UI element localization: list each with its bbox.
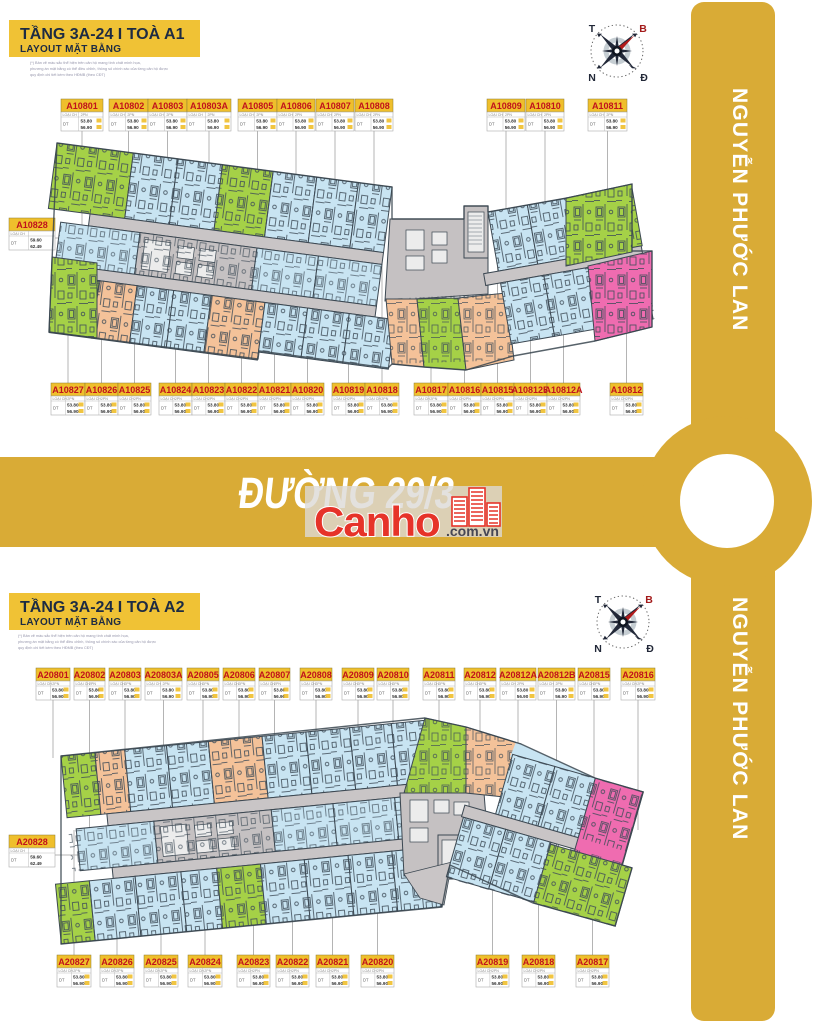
svg-text:DT: DT <box>279 122 285 127</box>
svg-text:NGUYỄN PHƯỚC LAN: NGUYỄN PHƯỚC LAN <box>728 88 752 332</box>
svg-text:2PN: 2PN <box>73 969 80 973</box>
svg-text:LOẠI CH: LOẠI CH <box>120 397 135 401</box>
svg-text:DT: DT <box>102 978 108 983</box>
svg-text:LAYOUT MẶT BẰNG: LAYOUT MẶT BẰNG <box>20 42 121 55</box>
svg-text:LOẠI CH: LOẠI CH <box>363 969 378 973</box>
svg-text:2PN: 2PN <box>377 969 384 973</box>
svg-text:LOẠI CH: LOẠI CH <box>278 969 293 973</box>
svg-text:53.80: 53.80 <box>207 119 219 124</box>
svg-text:53.80: 53.80 <box>292 975 304 980</box>
svg-text:DT: DT <box>293 406 299 411</box>
svg-text:LOẠI CH: LOẠI CH <box>293 397 308 401</box>
svg-text:53.80: 53.80 <box>637 688 649 693</box>
svg-text:A10806: A10806 <box>280 101 312 111</box>
svg-text:A20810: A20810 <box>377 670 409 680</box>
svg-text:2PN: 2PN <box>67 397 74 401</box>
svg-text:A20828: A20828 <box>16 837 48 847</box>
svg-text:LOẠI CH: LOẠI CH <box>111 113 126 117</box>
svg-text:A20815: A20815 <box>578 670 610 680</box>
svg-text:56.90: 56.90 <box>67 409 79 414</box>
svg-text:53.80: 53.80 <box>124 688 136 693</box>
svg-text:A20818: A20818 <box>523 957 555 967</box>
svg-text:LOẠI CH: LOẠI CH <box>189 682 204 686</box>
svg-text:LOẠI CH: LOẠI CH <box>502 682 517 686</box>
svg-text:2PN: 2PN <box>160 969 167 973</box>
svg-text:DT: DT <box>363 978 369 983</box>
svg-text:53.80: 53.80 <box>166 119 178 124</box>
svg-text:56.90: 56.90 <box>479 694 491 699</box>
svg-text:56.90: 56.90 <box>626 409 638 414</box>
svg-text:LOẠI CH: LOẠI CH <box>53 397 68 401</box>
svg-text:DT: DT <box>194 406 200 411</box>
svg-text:53.80: 53.80 <box>373 119 385 124</box>
svg-text:2PN: 2PN <box>256 113 263 117</box>
svg-text:56.90: 56.90 <box>238 694 250 699</box>
svg-text:53.80: 53.80 <box>392 688 404 693</box>
svg-text:56.90: 56.90 <box>332 981 344 986</box>
svg-text:(*) Bản vẽ màu sắc thể hiện tr: (*) Bản vẽ màu sắc thể hiện trên căn hộ … <box>18 633 129 638</box>
svg-text:56.90: 56.90 <box>101 409 113 414</box>
svg-text:A20819: A20819 <box>477 957 509 967</box>
svg-text:56.90: 56.90 <box>73 981 85 986</box>
svg-text:LOẠI CH: LOẠI CH <box>379 682 394 686</box>
svg-text:2PN: 2PN <box>81 113 88 117</box>
svg-text:53.80: 53.80 <box>593 688 605 693</box>
svg-text:2PN: 2PN <box>89 682 96 686</box>
svg-text:A10802: A10802 <box>113 101 145 111</box>
svg-text:56.90: 56.90 <box>274 409 286 414</box>
svg-text:2PN: 2PN <box>530 397 537 401</box>
svg-text:56.90: 56.90 <box>81 125 93 130</box>
svg-text:2PN: 2PN <box>563 397 570 401</box>
svg-text:56.90: 56.90 <box>208 409 220 414</box>
svg-text:2PN: 2PN <box>116 969 123 973</box>
svg-text:53.80: 53.80 <box>464 403 476 408</box>
svg-text:LOẠI CH: LOẠI CH <box>489 113 504 117</box>
svg-text:DT: DT <box>261 691 267 696</box>
svg-text:A20825: A20825 <box>145 957 177 967</box>
svg-text:53.80: 53.80 <box>479 688 491 693</box>
svg-text:2PN: 2PN <box>464 397 471 401</box>
svg-text:A10828: A10828 <box>16 220 48 230</box>
svg-text:A20801: A20801 <box>37 670 69 680</box>
svg-text:A10816: A10816 <box>449 385 481 395</box>
svg-text:2PN: 2PN <box>626 397 633 401</box>
svg-text:56.90: 56.90 <box>292 981 304 986</box>
svg-text:DT: DT <box>528 122 534 127</box>
svg-text:56.90: 56.90 <box>492 981 504 986</box>
svg-text:56.90: 56.90 <box>207 125 219 130</box>
svg-text:DT: DT <box>318 978 324 983</box>
svg-text:DT: DT <box>161 406 167 411</box>
svg-text:LOẠI CH: LOẠI CH <box>302 682 317 686</box>
svg-text:DT: DT <box>278 978 284 983</box>
svg-text:A20803A: A20803A <box>144 670 183 680</box>
svg-text:LOẠI CH: LOẠI CH <box>111 682 126 686</box>
svg-text:56.90: 56.90 <box>315 694 327 699</box>
svg-text:LOẠI CH: LOẠI CH <box>59 969 74 973</box>
svg-text:LOẠI CH: LOẠI CH <box>161 397 176 401</box>
svg-text:A20807: A20807 <box>259 670 291 680</box>
svg-text:A10818: A10818 <box>366 385 398 395</box>
svg-text:53.80: 53.80 <box>492 975 504 980</box>
svg-text:2PN: 2PN <box>592 969 599 973</box>
svg-text:53.80: 53.80 <box>348 403 360 408</box>
svg-text:56.90: 56.90 <box>373 125 385 130</box>
svg-text:2PN: 2PN <box>166 113 173 117</box>
svg-text:DT: DT <box>53 406 59 411</box>
svg-text:A20812: A20812 <box>464 670 496 680</box>
svg-text:TẦNG 3A-24 I TOÀ A1: TẦNG 3A-24 I TOÀ A1 <box>20 24 185 43</box>
svg-text:56.90: 56.90 <box>253 981 265 986</box>
svg-text:LOẠI CH: LOẠI CH <box>549 397 564 401</box>
svg-text:A20817: A20817 <box>577 957 609 967</box>
svg-text:A10817: A10817 <box>415 385 447 395</box>
svg-text:2PN: 2PN <box>479 682 486 686</box>
svg-text:56.90: 56.90 <box>134 409 146 414</box>
svg-text:53.80: 53.80 <box>241 403 253 408</box>
svg-text:53.80: 53.80 <box>332 975 344 980</box>
svg-text:53.80: 53.80 <box>202 688 214 693</box>
svg-text:2PN: 2PN <box>593 682 600 686</box>
svg-text:56.90: 56.90 <box>593 694 605 699</box>
svg-text:53.80: 53.80 <box>127 119 139 124</box>
svg-text:DT: DT <box>425 691 431 696</box>
svg-text:56.90: 56.90 <box>124 694 136 699</box>
svg-text:56.90: 56.90 <box>357 694 369 699</box>
svg-text:56.90: 56.90 <box>160 981 172 986</box>
svg-text:2PN: 2PN <box>253 969 260 973</box>
svg-text:2PN: 2PN <box>274 397 281 401</box>
svg-text:2PN: 2PN <box>208 397 215 401</box>
svg-text:2PN: 2PN <box>348 397 355 401</box>
svg-text:DT: DT <box>379 691 385 696</box>
svg-text:2PN: 2PN <box>175 397 182 401</box>
svg-text:DT: DT <box>11 858 17 863</box>
svg-text:DT: DT <box>189 691 195 696</box>
svg-text:A20809: A20809 <box>342 670 374 680</box>
svg-text:53.80: 53.80 <box>517 688 529 693</box>
svg-text:59.60: 59.60 <box>30 855 42 860</box>
svg-text:62.49: 62.49 <box>30 861 42 866</box>
svg-text:DT: DT <box>489 122 495 127</box>
svg-text:DT: DT <box>416 406 422 411</box>
svg-text:LOẠI CH: LOẠI CH <box>516 397 531 401</box>
svg-text:A10805: A10805 <box>242 101 274 111</box>
svg-text:56.90: 56.90 <box>241 409 253 414</box>
svg-text:56.90: 56.90 <box>162 694 174 699</box>
svg-text:A20806: A20806 <box>223 670 255 680</box>
svg-text:53.80: 53.80 <box>101 403 113 408</box>
svg-text:53.80: 53.80 <box>544 119 556 124</box>
svg-text:56.90: 56.90 <box>307 409 319 414</box>
svg-text:53.80: 53.80 <box>253 975 265 980</box>
svg-text:A20823: A20823 <box>238 957 270 967</box>
svg-text:2PN: 2PN <box>295 113 302 117</box>
svg-text:LOẠI CH: LOẠI CH <box>11 849 26 853</box>
svg-text:53.80: 53.80 <box>377 975 389 980</box>
svg-text:2PN: 2PN <box>556 682 563 686</box>
svg-text:56.90: 56.90 <box>497 409 509 414</box>
svg-text:2PN: 2PN <box>101 397 108 401</box>
svg-text:53.80: 53.80 <box>538 975 550 980</box>
svg-text:LOẠI CH: LOẠI CH <box>334 397 349 401</box>
svg-text:53.80: 53.80 <box>430 403 442 408</box>
svg-text:LOẠI CH: LOẠI CH <box>102 969 117 973</box>
svg-text:53.80: 53.80 <box>505 119 517 124</box>
svg-text:LOẠI CH: LOẠI CH <box>466 682 481 686</box>
svg-text:(*) Bản vẽ màu sắc thể hiện tr: (*) Bản vẽ màu sắc thể hiện trên căn hộ … <box>30 60 141 65</box>
svg-text:DT: DT <box>344 691 350 696</box>
svg-text:2PN: 2PN <box>204 969 211 973</box>
svg-text:59.60: 59.60 <box>30 238 42 243</box>
svg-text:A20805: A20805 <box>187 670 219 680</box>
svg-text:DT: DT <box>549 406 555 411</box>
svg-text:2PN: 2PN <box>332 969 339 973</box>
svg-text:56.90: 56.90 <box>166 125 178 130</box>
svg-text:A20816: A20816 <box>622 670 654 680</box>
svg-text:2PN: 2PN <box>392 682 399 686</box>
svg-text:56.90: 56.90 <box>348 409 360 414</box>
svg-text:A20826: A20826 <box>101 957 133 967</box>
svg-text:DT: DT <box>334 406 340 411</box>
svg-text:LOẠI CH: LOẠI CH <box>225 682 240 686</box>
svg-text:53.80: 53.80 <box>334 119 346 124</box>
svg-text:DT: DT <box>623 691 629 696</box>
svg-text:DT: DT <box>466 691 472 696</box>
svg-text:DT: DT <box>540 691 546 696</box>
svg-text:DT: DT <box>87 406 93 411</box>
svg-text:LOẠI CH: LOẠI CH <box>240 113 255 117</box>
svg-text:2PN: 2PN <box>373 113 380 117</box>
svg-text:A10807: A10807 <box>319 101 351 111</box>
svg-text:A10826: A10826 <box>86 385 118 395</box>
svg-text:A20824: A20824 <box>189 957 221 967</box>
svg-text:56.90: 56.90 <box>52 694 64 699</box>
svg-text:56.90: 56.90 <box>530 409 542 414</box>
svg-text:LOẠI CH: LOẠI CH <box>590 113 605 117</box>
svg-text:53.80: 53.80 <box>563 403 575 408</box>
svg-text:56.90: 56.90 <box>430 409 442 414</box>
svg-text:53.80: 53.80 <box>555 688 567 693</box>
svg-text:56.90: 56.90 <box>202 694 214 699</box>
svg-text:53.80: 53.80 <box>295 119 307 124</box>
svg-text:56.90: 56.90 <box>116 981 128 986</box>
svg-text:A20811: A20811 <box>423 670 454 680</box>
svg-text:LOẠI CH: LOẠI CH <box>146 969 161 973</box>
svg-text:DT: DT <box>120 406 126 411</box>
svg-text:53.80: 53.80 <box>592 975 604 980</box>
svg-text:2PN: 2PN <box>127 113 134 117</box>
svg-text:DT: DT <box>59 978 65 983</box>
svg-text:DT: DT <box>150 122 156 127</box>
svg-text:A20827: A20827 <box>58 957 90 967</box>
svg-text:LOẠI CH: LOẠI CH <box>63 113 78 117</box>
svg-text:A10811: A10811 <box>592 101 623 111</box>
svg-text:Canho: Canho <box>314 498 440 545</box>
svg-text:2PN: 2PN <box>505 113 512 117</box>
svg-text:LOẠI CH: LOẠI CH <box>344 682 359 686</box>
svg-text:A20808: A20808 <box>300 670 332 680</box>
svg-text:2PN: 2PN <box>492 969 499 973</box>
svg-text:DT: DT <box>147 691 153 696</box>
svg-text:56.90: 56.90 <box>392 694 404 699</box>
svg-text:2PN: 2PN <box>292 969 299 973</box>
svg-text:LOẠI CH: LOẠI CH <box>357 113 372 117</box>
svg-text:.com.vn: .com.vn <box>446 523 499 539</box>
svg-text:2PN: 2PN <box>497 397 504 401</box>
svg-text:53.80: 53.80 <box>204 975 216 980</box>
svg-text:56.90: 56.90 <box>295 125 307 130</box>
svg-text:56.90: 56.90 <box>555 694 567 699</box>
svg-text:LOẠI CH: LOẠI CH <box>478 969 493 973</box>
svg-text:LOẠI CH: LOẠI CH <box>450 397 465 401</box>
svg-text:A10824: A10824 <box>160 385 192 395</box>
svg-text:A20802: A20802 <box>74 670 106 680</box>
svg-text:53.80: 53.80 <box>626 403 638 408</box>
svg-text:DT: DT <box>580 691 586 696</box>
svg-text:A20820: A20820 <box>362 957 394 967</box>
svg-text:A10803: A10803 <box>152 101 184 111</box>
svg-text:LOẠI CH: LOẠI CH <box>416 397 431 401</box>
svg-text:A10810: A10810 <box>529 101 561 111</box>
svg-text:DT: DT <box>578 978 584 983</box>
svg-text:53.80: 53.80 <box>315 688 327 693</box>
svg-text:LOẠI CH: LOẠI CH <box>483 397 498 401</box>
svg-text:53.80: 53.80 <box>381 403 393 408</box>
svg-text:DT: DT <box>189 122 195 127</box>
svg-text:A10803A: A10803A <box>190 101 229 111</box>
svg-text:DT: DT <box>146 978 152 983</box>
svg-text:53.80: 53.80 <box>238 688 250 693</box>
svg-text:LOẠI CH: LOẠI CH <box>38 682 53 686</box>
svg-text:53.80: 53.80 <box>497 403 509 408</box>
svg-text:LOẠI CH: LOẠI CH <box>580 682 595 686</box>
svg-text:LOẠI CH: LOẠI CH <box>318 969 333 973</box>
svg-text:2PN: 2PN <box>208 113 215 117</box>
svg-text:LOẠI CH: LOẠI CH <box>623 682 638 686</box>
svg-text:53.80: 53.80 <box>52 688 64 693</box>
svg-text:56.90: 56.90 <box>438 694 450 699</box>
svg-text:quy định chi tiết kèm theo HĐM: quy định chi tiết kèm theo HĐMB (theo CĐ… <box>30 73 106 77</box>
svg-text:2PN: 2PN <box>606 113 613 117</box>
svg-text:56.90: 56.90 <box>517 694 529 699</box>
svg-text:53.80: 53.80 <box>438 688 450 693</box>
svg-text:56.90: 56.90 <box>592 981 604 986</box>
svg-text:53.80: 53.80 <box>81 119 93 124</box>
svg-text:56.90: 56.90 <box>606 125 618 130</box>
svg-text:LOẠI CH: LOẠI CH <box>524 969 539 973</box>
svg-text:56.90: 56.90 <box>334 125 346 130</box>
svg-text:2PN: 2PN <box>315 682 322 686</box>
svg-text:DT: DT <box>38 691 44 696</box>
svg-text:DT: DT <box>612 406 618 411</box>
svg-text:A10809: A10809 <box>490 101 522 111</box>
svg-text:LOẠI CH: LOẠI CH <box>260 397 275 401</box>
svg-text:DT: DT <box>76 691 82 696</box>
svg-text:56.90: 56.90 <box>563 409 575 414</box>
svg-text:LOẠI CH: LOẠI CH <box>150 113 165 117</box>
svg-text:2PN: 2PN <box>637 682 644 686</box>
svg-text:DT: DT <box>450 406 456 411</box>
svg-text:DT: DT <box>318 122 324 127</box>
svg-text:DT: DT <box>502 691 508 696</box>
svg-text:2PN: 2PN <box>307 397 314 401</box>
svg-text:56.90: 56.90 <box>175 409 187 414</box>
svg-text:A10812A: A10812A <box>544 385 583 395</box>
svg-text:LOẠI CH: LOẠI CH <box>87 397 102 401</box>
svg-text:A10822: A10822 <box>226 385 258 395</box>
svg-text:2PN: 2PN <box>430 397 437 401</box>
svg-text:2PN: 2PN <box>438 682 445 686</box>
svg-text:DT: DT <box>516 406 522 411</box>
svg-text:DT: DT <box>240 122 246 127</box>
svg-text:A20812A: A20812A <box>499 670 538 680</box>
svg-text:TẦNG 3A-24 I TOÀ A2: TẦNG 3A-24 I TOÀ A2 <box>20 597 185 616</box>
svg-text:phương án mặt bằng có thể điều: phương án mặt bằng có thể điều chỉnh, th… <box>30 66 168 71</box>
svg-text:2PN: 2PN <box>334 113 341 117</box>
svg-text:2PN: 2PN <box>202 682 209 686</box>
svg-text:2PN: 2PN <box>163 682 170 686</box>
svg-text:A10827: A10827 <box>52 385 84 395</box>
svg-text:56.90: 56.90 <box>637 694 649 699</box>
svg-text:LOẠI CH: LOẠI CH <box>528 113 543 117</box>
svg-text:56.90: 56.90 <box>204 981 216 986</box>
svg-text:LOẠI CH: LOẠI CH <box>227 397 242 401</box>
svg-text:LOẠI CH: LOẠI CH <box>190 969 205 973</box>
svg-text:A10808: A10808 <box>358 101 390 111</box>
svg-text:LOẠI CH: LOẠI CH <box>318 113 333 117</box>
svg-text:53.80: 53.80 <box>307 403 319 408</box>
svg-text:LOẠI CH: LOẠI CH <box>367 397 382 401</box>
svg-text:DT: DT <box>524 978 530 983</box>
svg-text:56.90: 56.90 <box>538 981 550 986</box>
svg-text:53.80: 53.80 <box>134 403 146 408</box>
svg-text:2PN: 2PN <box>517 682 524 686</box>
svg-text:LOẠI CH: LOẠI CH <box>194 397 209 401</box>
svg-text:62.49: 62.49 <box>30 244 42 249</box>
svg-text:56.90: 56.90 <box>505 125 517 130</box>
svg-text:phương án mặt bằng có thể điều: phương án mặt bằng có thể điều chỉnh, th… <box>18 639 156 644</box>
svg-text:2PN: 2PN <box>381 397 388 401</box>
svg-text:2PN: 2PN <box>238 682 245 686</box>
svg-text:LOẠI CH: LOẠI CH <box>279 113 294 117</box>
svg-text:DT: DT <box>357 122 363 127</box>
svg-text:56.90: 56.90 <box>464 409 476 414</box>
svg-text:56.90: 56.90 <box>544 125 556 130</box>
svg-text:A10815: A10815 <box>482 385 514 395</box>
svg-text:53.80: 53.80 <box>357 688 369 693</box>
svg-text:A10821: A10821 <box>259 385 291 395</box>
svg-text:NGUYỄN PHƯỚC LAN: NGUYỄN PHƯỚC LAN <box>728 597 752 841</box>
svg-text:53.80: 53.80 <box>160 975 172 980</box>
svg-text:LOẠI CH: LOẠI CH <box>147 682 162 686</box>
svg-text:DT: DT <box>190 978 196 983</box>
svg-text:A20822: A20822 <box>277 957 309 967</box>
svg-text:53.80: 53.80 <box>116 975 128 980</box>
svg-text:A10812: A10812 <box>611 385 643 395</box>
svg-text:2PN: 2PN <box>538 969 545 973</box>
svg-text:DT: DT <box>302 691 308 696</box>
svg-text:DT: DT <box>63 122 69 127</box>
svg-text:A10820: A10820 <box>292 385 324 395</box>
svg-text:quy định chi tiết kèm theo HĐM: quy định chi tiết kèm theo HĐMB (theo CĐ… <box>18 646 94 650</box>
svg-text:LOẠI CH: LOẠI CH <box>11 232 26 236</box>
svg-text:2PN: 2PN <box>357 682 364 686</box>
svg-text:DT: DT <box>483 406 489 411</box>
svg-text:56.90: 56.90 <box>381 409 393 414</box>
svg-text:DT: DT <box>260 406 266 411</box>
